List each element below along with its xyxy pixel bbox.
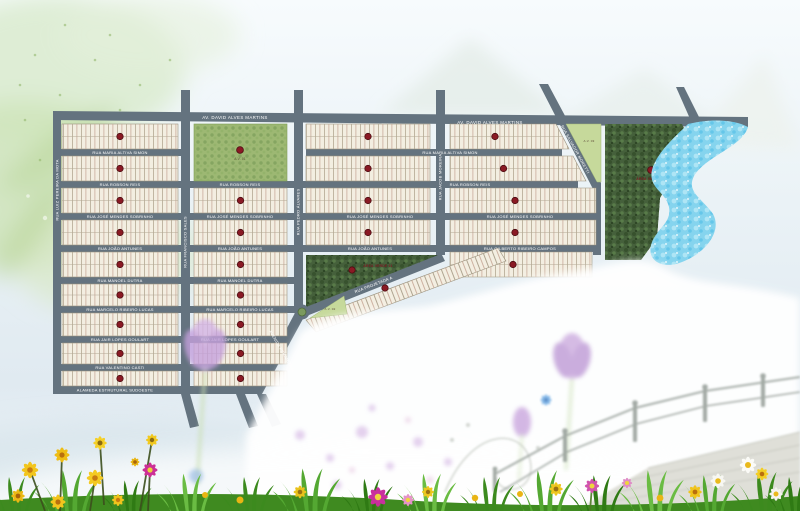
- street-label: RUA JOÃO ANTUNES: [348, 246, 392, 251]
- block-marker: [117, 321, 123, 327]
- block-marker: [365, 197, 371, 203]
- block-marker: [117, 350, 123, 356]
- street-label: RUA MARIA ALTIVA SIMON: [92, 150, 147, 155]
- block-marker: [237, 321, 243, 327]
- block-marker: [237, 261, 243, 267]
- block-marker: [510, 261, 516, 267]
- verde1-marker: [349, 267, 355, 273]
- block-marker: [117, 292, 123, 298]
- block-marker: [237, 375, 243, 381]
- park-marker: [237, 147, 244, 154]
- street-left-boundary: [53, 112, 61, 394]
- street-label: RUA JAIR LOPES GOULART: [91, 337, 150, 342]
- avenue-label-2: AV. DAVID ALVES MARTINS: [457, 120, 523, 125]
- street-label: RUA MARCELO RIBEIRO LUCAS: [86, 307, 153, 312]
- street-label: RUA ROBSON REIS: [450, 182, 491, 187]
- block-marker: [117, 261, 123, 267]
- street-label-vertical: RUA JACOB MOREIRA: [438, 154, 443, 201]
- street-label: RUA JOSÉ MENDES SOBRINHO: [487, 214, 553, 219]
- street-label-vertical: RUA LUIZ PEREIRA DA MOTA: [55, 159, 60, 220]
- street-s8: [61, 364, 268, 371]
- street-label-vertical: RUA FRANCISCO SALES: [183, 216, 188, 268]
- street-label: RUA ROBSON REIS: [220, 182, 261, 187]
- street-label: RUA MANOEL DUTRA: [218, 278, 263, 283]
- block-marker: [117, 375, 123, 381]
- wedge-av03-label: A.V. 03: [584, 139, 595, 143]
- street-label: ALAMEDA ESTRUTURAL SUDOESTE: [77, 388, 153, 393]
- blue-flower: [540, 394, 551, 405]
- street-label: RUA JOÃO ANTUNES: [218, 246, 262, 251]
- block-marker: [117, 165, 123, 171]
- park-label: A.V. 01: [234, 157, 246, 161]
- street-label: RUA MARIA ALTIVA SIMON: [422, 150, 477, 155]
- block-marker: [365, 165, 371, 171]
- street-label: RUA JOÃO ANTUNES: [98, 246, 142, 251]
- street-label: RUA ROBSON REIS: [100, 182, 141, 187]
- block-marker: [492, 133, 498, 139]
- wedge-av02-label: A.V. 02: [325, 307, 336, 311]
- block-marker: [237, 229, 243, 235]
- avenue-label: AV. DAVID ALVES MARTINS: [202, 115, 268, 120]
- block-marker: [237, 292, 243, 298]
- verde1-label: ÁREA VERDE 01: [363, 263, 392, 268]
- street-label: RUA MARCELO RIBEIRO LUCAS: [206, 307, 273, 312]
- street-label: RUA MANOEL DUTRA: [98, 278, 143, 283]
- block-marker: [512, 197, 518, 203]
- spring-map-scene: A.V. 01 ÁREA VERDE 01 A.V. 02 A.V. 03 ÁR: [0, 0, 800, 511]
- street-label: RUA VALENTINO CASTI: [95, 365, 144, 370]
- street-label: RUA JOSÉ MENDES SOBRINHO: [347, 214, 413, 219]
- street-label-vertical: RUA PEDRO ÁLVARES: [296, 189, 301, 236]
- block-marker: [237, 350, 243, 356]
- block-marker: [365, 133, 371, 139]
- block-marker: [382, 285, 388, 291]
- block-marker: [237, 197, 243, 203]
- street-label: RUA JOSÉ MENDES SOBRINHO: [207, 214, 273, 219]
- park-av01: A.V. 01: [194, 124, 287, 181]
- block-marker: [117, 229, 123, 235]
- scene-canvas: A.V. 01 ÁREA VERDE 01 A.V. 02 A.V. 03 ÁR: [0, 0, 800, 511]
- block-marker: [500, 165, 506, 171]
- block-marker: [117, 197, 123, 203]
- street-label: RUA JOSÉ MENDES SOBRINHO: [87, 214, 153, 219]
- roundabout: [295, 305, 310, 320]
- block-marker: [512, 229, 518, 235]
- block-marker: [117, 133, 123, 139]
- street-label: RUA GILBERTO RIBEIRO CAMPOS: [484, 246, 556, 251]
- block-marker: [365, 229, 371, 235]
